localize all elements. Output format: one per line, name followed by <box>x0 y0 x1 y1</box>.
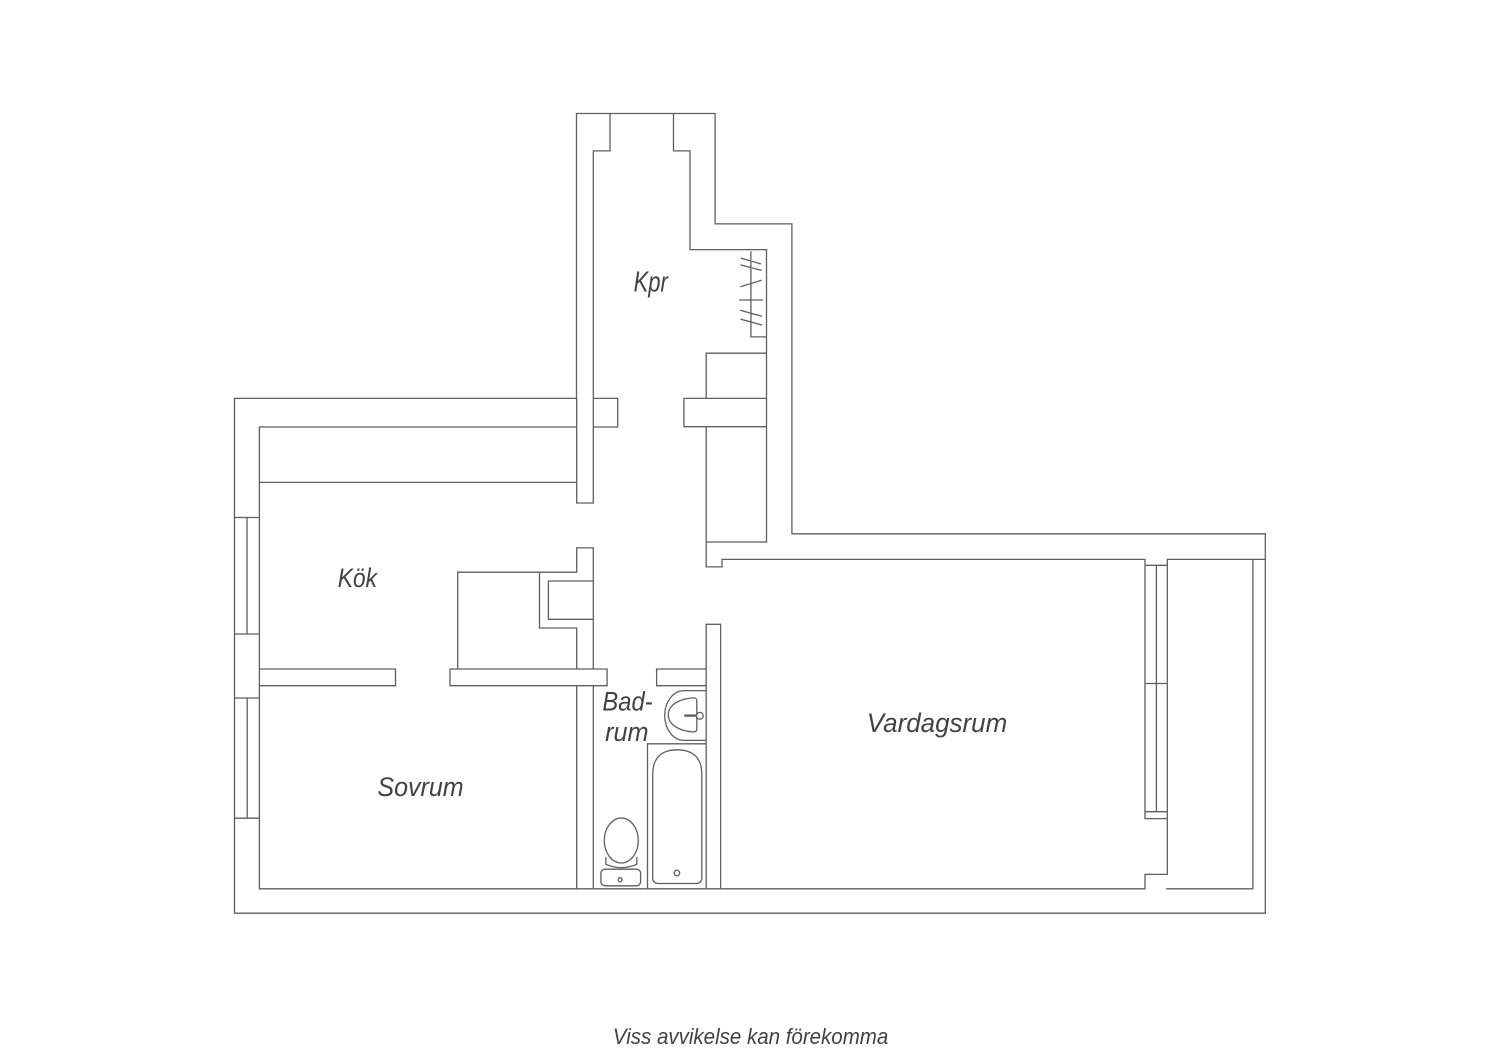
svg-text:Kpr: Kpr <box>634 266 669 298</box>
svg-text:Sovrum: Sovrum <box>377 772 463 802</box>
svg-text:Bad-: Bad- <box>602 687 652 717</box>
svg-text:Kök: Kök <box>338 563 379 593</box>
svg-text:Viss avvikelse kan förekomma: Viss avvikelse kan förekomma <box>613 1024 888 1049</box>
svg-text:Vardagsrum: Vardagsrum <box>867 708 1007 738</box>
svg-text:rum: rum <box>605 717 649 747</box>
